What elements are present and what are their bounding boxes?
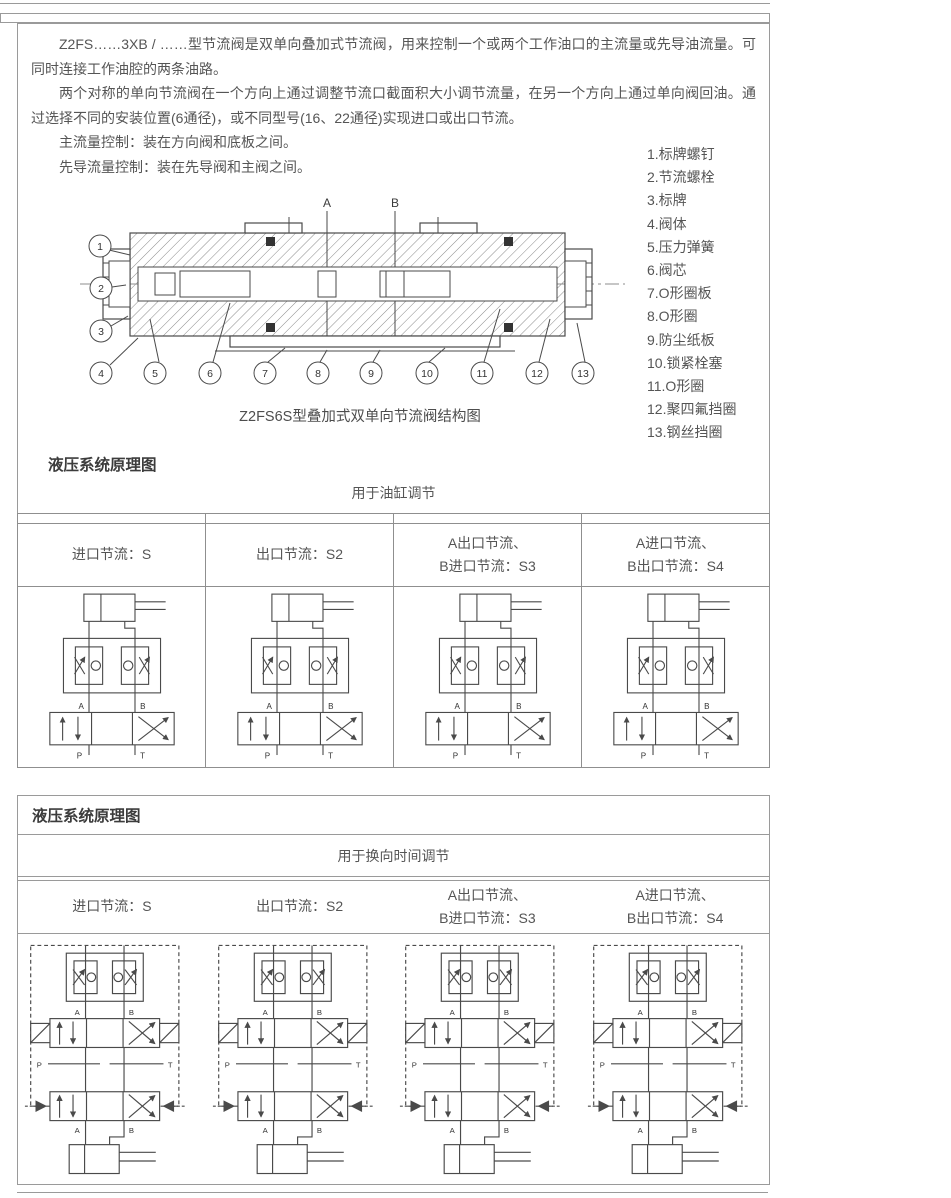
header-s3: A出口节流、 B进口节流：S3 xyxy=(394,881,582,933)
label-b: B xyxy=(129,1007,134,1016)
datasheet-page: { "intro": { "paragraphs": [ "Z2FS……3XB … xyxy=(0,0,951,1198)
port-a-label: A xyxy=(323,196,331,210)
label-b: B xyxy=(704,702,709,711)
label-b: B xyxy=(316,1007,321,1016)
label-a: A xyxy=(75,1007,81,1016)
section1-title: 液压系统原理图 xyxy=(48,453,157,475)
header-line: A出口节流、 xyxy=(394,532,581,555)
parts-list: 1.标牌螺钉 2.节流螺栓 3.标牌 4.阀体 5.压力弹簧 6.阀芯 7.O形… xyxy=(647,143,772,445)
header-line: B出口节流：S4 xyxy=(582,555,769,578)
intro-paragraph: 两个对称的单向节流阀在一个方向上通过调整节流口截面积大小调节流量，在另一个方向上… xyxy=(31,81,756,130)
schematic-cell-s: A B P T xyxy=(18,587,206,768)
callout-number: 13 xyxy=(577,368,589,380)
parts-list-item: 10.锁紧栓塞 xyxy=(647,352,772,375)
section2-subtitle: 用于换向时间调节 xyxy=(18,835,769,877)
port-b-label: B xyxy=(391,196,399,210)
label-t: T xyxy=(543,1060,548,1069)
header-inlet-throttle: 进口节流：S xyxy=(18,524,206,587)
label-t: T xyxy=(328,751,333,760)
valve-structure-diagram: A B xyxy=(80,191,640,391)
label-p: P xyxy=(224,1060,229,1069)
label-b: B xyxy=(140,702,145,711)
parts-list-item: 1.标牌螺钉 xyxy=(647,143,772,166)
label-a: A xyxy=(642,702,648,711)
parts-list-item: 3.标牌 xyxy=(647,189,772,212)
schematic-cell-s4: A B P T xyxy=(582,587,770,768)
label-a: A xyxy=(450,1126,456,1135)
next-section-top-rule xyxy=(17,1192,768,1193)
header-line: 进口节流：S xyxy=(18,543,205,566)
schematic-cell-s: A B P T A B xyxy=(18,934,206,1184)
callout-number: 11 xyxy=(477,368,488,380)
header-line: B出口节流：S4 xyxy=(627,907,723,930)
schematic-cell-s4: A B P T A B xyxy=(581,934,769,1184)
label-a: A xyxy=(78,702,84,711)
label-p: P xyxy=(640,751,645,760)
label-b: B xyxy=(504,1007,509,1016)
intro-paragraph: Z2FS……3XB / ……型节流阀是双单向叠加式节流阀，用来控制一个或两个工作… xyxy=(31,32,756,81)
label-b: B xyxy=(692,1126,697,1135)
switching-schematic-s3: A B P T A B xyxy=(398,939,576,1180)
header-outlet-throttle: 出口节流：S2 xyxy=(206,524,394,587)
label-b: B xyxy=(328,702,333,711)
callout-number: 6 xyxy=(207,368,213,380)
header-line: A进口节流、 xyxy=(582,532,769,555)
label-p: P xyxy=(452,751,457,760)
hydraulic-schematic-s4: A B P T xyxy=(593,589,759,761)
parts-list-item: 4.阀体 xyxy=(647,213,772,236)
table-spacer-row xyxy=(18,514,770,524)
header-s4: A进口节流、 B出口节流：S4 xyxy=(582,524,770,587)
switching-schematic-s: A B P T A B xyxy=(23,939,201,1180)
callout-number: 3 xyxy=(98,326,104,338)
description-and-structure-box: Z2FS……3XB / ……型节流阀是双单向叠加式节流阀，用来控制一个或两个工作… xyxy=(17,23,770,515)
section2-title: 液压系统原理图 xyxy=(18,796,769,835)
label-a: A xyxy=(450,1007,456,1016)
parts-list-item: 6.阀芯 xyxy=(647,259,772,282)
parts-list-item: 9.防尘纸板 xyxy=(647,329,772,352)
callout-number: 7 xyxy=(262,368,268,380)
label-p: P xyxy=(600,1060,605,1069)
schematic-cell-s2: A B P T A B xyxy=(206,934,394,1184)
header-line: A出口节流、 xyxy=(448,884,527,907)
label-t: T xyxy=(140,751,145,760)
parts-list-item: 11.O形圈 xyxy=(647,375,772,398)
label-b: B xyxy=(504,1126,509,1135)
schematic-cell-s2: A B P T xyxy=(206,587,394,768)
label-a: A xyxy=(262,1126,268,1135)
cylinder-control-table: 进口节流：S 出口节流：S2 A出口节流、 B进口节流：S3 A进口节流、 B出… xyxy=(17,513,770,768)
label-a: A xyxy=(262,1007,268,1016)
section2-schematic-row: A B P T A B A B P T A B A B xyxy=(18,934,769,1184)
parts-list-item: 8.O形圈 xyxy=(647,305,772,328)
callout-number: 10 xyxy=(421,368,433,380)
label-a: A xyxy=(75,1126,81,1135)
parts-list-item: 5.压力弹簧 xyxy=(647,236,772,259)
label-t: T xyxy=(516,751,521,760)
header-line: 出口节流：S2 xyxy=(206,543,393,566)
callout-number: 9 xyxy=(368,368,374,380)
label-t: T xyxy=(731,1060,736,1069)
header-outlet-throttle: 出口节流：S2 xyxy=(206,881,394,933)
header-line: 出口节流：S2 xyxy=(256,895,343,918)
label-a: A xyxy=(638,1007,644,1016)
header-line: B进口节流：S3 xyxy=(439,907,535,930)
schematic-cell-s3: A B P T A B xyxy=(394,934,582,1184)
parts-list-item: 2.节流螺栓 xyxy=(647,166,772,189)
callout-number: 2 xyxy=(98,283,104,295)
label-p: P xyxy=(412,1060,417,1069)
label-a: A xyxy=(454,702,460,711)
label-t: T xyxy=(704,751,709,760)
switching-schematic-s4: A B P T A B xyxy=(586,939,764,1180)
label-b: B xyxy=(516,702,521,711)
label-p: P xyxy=(37,1060,42,1069)
label-t: T xyxy=(168,1060,173,1069)
header-inlet-throttle: 进口节流：S xyxy=(18,881,206,933)
page-top-strip xyxy=(0,13,770,23)
section1-subtitle: 用于油缸调节 xyxy=(18,483,769,503)
label-b: B xyxy=(129,1126,134,1135)
label-b: B xyxy=(316,1126,321,1135)
label-a: A xyxy=(638,1126,644,1135)
callout-number: 12 xyxy=(531,368,543,380)
header-s4: A进口节流、 B出口节流：S4 xyxy=(581,881,769,933)
parts-list-item: 7.O形圈板 xyxy=(647,282,772,305)
hydraulic-schematic-s2: A B P T xyxy=(217,589,383,761)
label-a: A xyxy=(266,702,272,711)
label-t: T xyxy=(355,1060,360,1069)
header-line: 进口节流：S xyxy=(72,895,151,918)
callout-number: 5 xyxy=(152,368,158,380)
switching-schematic-s2: A B P T A B xyxy=(211,939,389,1180)
callout-number: 8 xyxy=(315,368,321,380)
header-line: A进口节流、 xyxy=(635,884,714,907)
label-b: B xyxy=(692,1007,697,1016)
hydraulic-schematic-s: A B P T xyxy=(29,589,195,761)
table-header-row: 进口节流：S 出口节流：S2 A出口节流、 B进口节流：S3 A进口节流、 B出… xyxy=(18,524,770,587)
page-top-rule xyxy=(0,3,770,4)
callout-number: 1 xyxy=(97,241,103,253)
label-p: P xyxy=(76,751,81,760)
section2-header-row: 进口节流：S 出口节流：S2 A出口节流、 B进口节流：S3 A进口节流、 B出… xyxy=(18,881,769,934)
structure-diagram-caption: Z2FS6S型叠加式双单向节流阀结构图 xyxy=(80,405,640,426)
table-schematic-row: A B P T A B P T A B P T xyxy=(18,587,770,768)
schematic-cell-s3: A B P T xyxy=(394,587,582,768)
header-line: B进口节流：S3 xyxy=(394,555,581,578)
hydraulic-schematic-s3: A B P T xyxy=(405,589,571,761)
parts-list-item: 13.钢丝挡圈 xyxy=(647,421,772,444)
parts-list-item: 12.聚四氟挡圈 xyxy=(647,398,772,421)
header-s3: A出口节流、 B进口节流：S3 xyxy=(394,524,582,587)
callout-number: 4 xyxy=(98,368,104,380)
label-p: P xyxy=(264,751,269,760)
switching-time-box: 液压系统原理图 用于换向时间调节 进口节流：S 出口节流：S2 A出口节流、 B… xyxy=(17,795,770,1185)
